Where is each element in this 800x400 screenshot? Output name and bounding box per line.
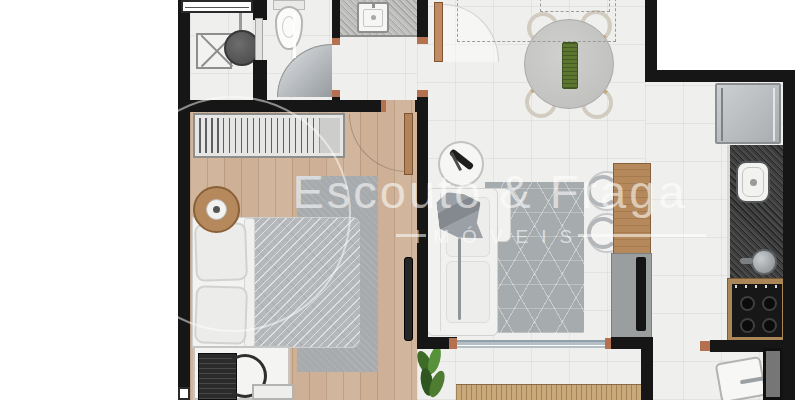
kitchen-faucet: [751, 249, 777, 275]
counter-edge: [727, 145, 730, 282]
hall-door-leaf: [434, 2, 443, 62]
door-jamb: [417, 90, 428, 97]
laundry-pipe: [239, 10, 242, 32]
throw-blanket-tail: [458, 238, 461, 320]
door-jamb: [381, 100, 386, 112]
sliding-door-track: [457, 340, 607, 348]
wardrobe-hangers: [199, 118, 317, 153]
wardrobe-shelf: [319, 118, 340, 153]
wall-laundry-divider: [253, 0, 267, 20]
door-jamb: [417, 37, 428, 44]
wall-kitchen-stub: [645, 0, 657, 82]
wall-bedroom-living: [417, 0, 428, 37]
wood-deck: [456, 384, 652, 400]
wall-balcony: [611, 337, 653, 349]
window-pane-line: [185, 7, 249, 8]
wardrobe: [193, 113, 345, 158]
stove-knobs: [735, 285, 779, 288]
basin-drain: [371, 15, 376, 20]
window-bedroom: [178, 387, 190, 400]
burner: [762, 296, 777, 311]
sink-drain: [750, 179, 757, 186]
wall-balcony-side: [641, 349, 653, 400]
round-side-table: [193, 186, 240, 233]
desk-shelf: [252, 384, 294, 400]
burner: [740, 296, 755, 311]
wall-bathroom-hall: [332, 0, 340, 38]
wall-entry-jamb: [763, 348, 783, 400]
fridge: [715, 83, 781, 144]
projection-dashed-inner: [540, 0, 610, 12]
pillow: [194, 285, 248, 345]
fridge-edge: [773, 88, 775, 141]
basin-faucet: [372, 3, 375, 8]
wood-sideboard: [613, 163, 651, 255]
wall-kitchen-top: [657, 70, 795, 82]
faucet-handle: [740, 258, 753, 264]
tv: [636, 257, 646, 331]
side-table-decor: [213, 206, 220, 213]
plant: [417, 346, 449, 400]
fridge-handle: [721, 88, 723, 141]
sofa-cushion: [446, 261, 490, 323]
watermark-line-right: [578, 234, 706, 237]
door-jamb: [332, 38, 340, 45]
door-jamb: [332, 90, 340, 97]
bedroom-door-leaf: [404, 113, 413, 175]
cooktop: [732, 284, 782, 337]
floor-plan: Escouto & Fraga IMÓVEIS: [0, 0, 800, 400]
window-laundry: [181, 0, 253, 13]
burner: [762, 318, 777, 333]
laundry-door-leaf: [255, 18, 263, 62]
wall-bedroom-top: [178, 100, 381, 112]
stove: [727, 278, 787, 341]
door-jamb: [449, 338, 457, 349]
wall-left-outer: [178, 0, 190, 400]
kitchen-sink: [736, 161, 770, 203]
burner: [740, 318, 755, 333]
watermark-line-left: [396, 234, 426, 237]
mirror: [404, 257, 413, 341]
washbasin: [357, 2, 389, 33]
sliding-door-glass-line: [457, 345, 607, 346]
bed-duvet: [252, 218, 360, 347]
glass-partition: [293, 12, 296, 58]
table-runner: [562, 42, 578, 89]
wall-bedroom-living: [417, 97, 428, 349]
wall-laundry-divider: [253, 60, 267, 100]
